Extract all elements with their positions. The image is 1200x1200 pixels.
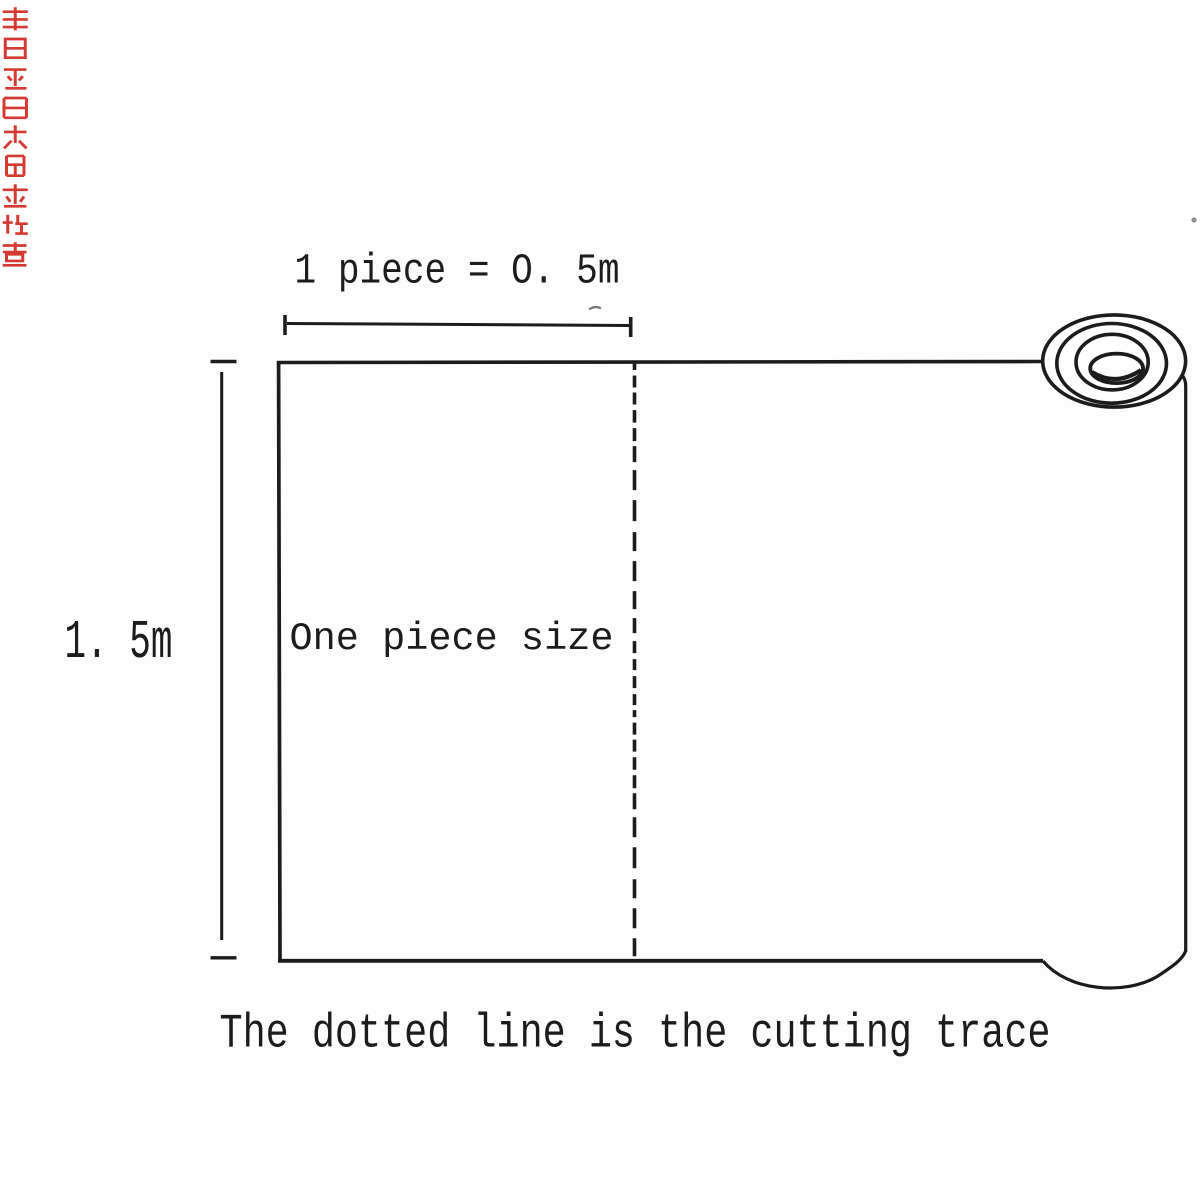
svg-text:The dotted line is the cutting: The dotted line is the cutting trace	[220, 1006, 1051, 1061]
svg-text:One piece size: One piece size	[290, 617, 614, 661]
svg-text:1. 5m: 1. 5m	[65, 611, 173, 674]
svg-text:1 piece = O. 5m: 1 piece = O. 5m	[295, 247, 620, 296]
